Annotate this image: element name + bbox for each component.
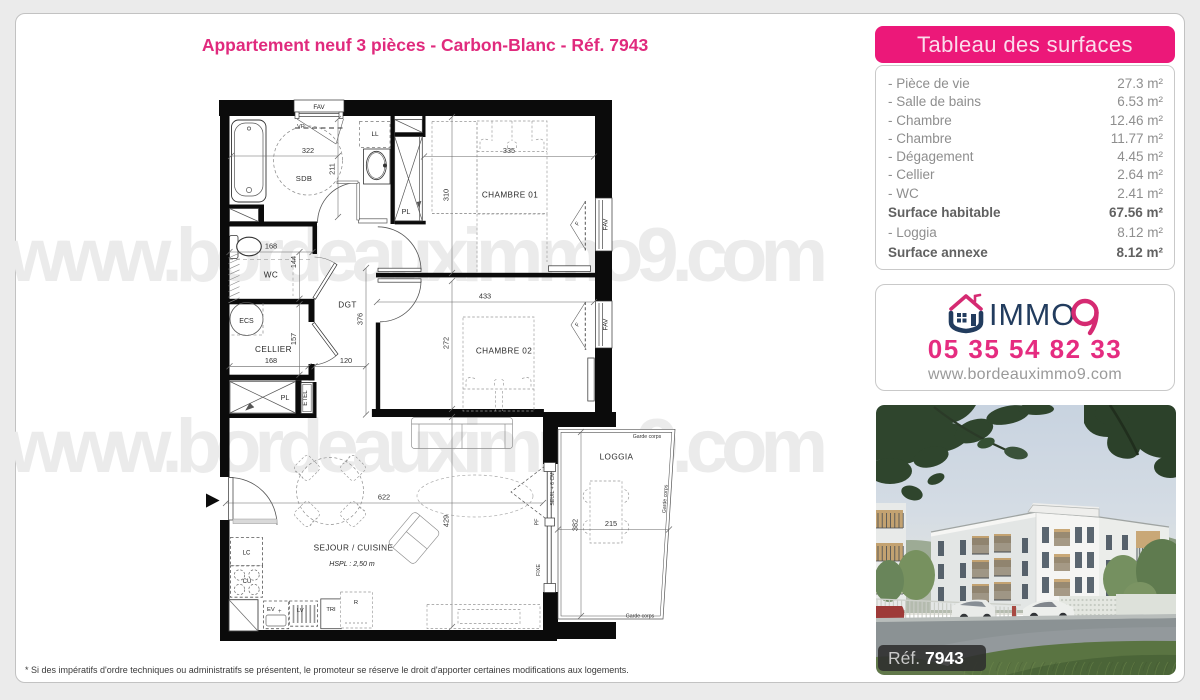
svg-text:FAV: FAV (603, 218, 610, 230)
svg-text:SDB: SDB (296, 174, 313, 183)
svg-text:IMMO: IMMO (989, 298, 1076, 332)
svg-text:168: 168 (265, 356, 277, 365)
svg-text:F: F (575, 322, 582, 328)
svg-text:622: 622 (378, 493, 390, 502)
svg-text:LL: LL (371, 131, 379, 138)
svg-text:SEJOUR / CUISINE: SEJOUR / CUISINE (314, 544, 394, 553)
svg-text:F: F (575, 221, 582, 227)
svg-text:310: 310 (442, 189, 451, 201)
svg-text:VR: VR (297, 124, 305, 130)
svg-text:DGT: DGT (338, 301, 356, 310)
svg-text:272: 272 (442, 337, 451, 349)
svg-text:HSPL : 2,50 m: HSPL : 2,50 m (329, 561, 375, 568)
svg-text:LV: LV (297, 608, 304, 614)
svg-text:LC: LC (243, 551, 251, 557)
svg-text:Réf. 7943: Réf. 7943 (888, 648, 964, 668)
svg-text:144: 144 (289, 256, 298, 268)
svg-text:FIXE: FIXE (536, 564, 542, 576)
svg-text:120: 120 (340, 356, 352, 365)
svg-text:PL: PL (281, 393, 290, 402)
svg-text:168: 168 (265, 242, 277, 251)
svg-text:382: 382 (571, 519, 580, 531)
svg-text:FAV: FAV (313, 104, 325, 111)
svg-text:ETEL: ETEL (302, 390, 309, 406)
svg-text:376: 376 (356, 313, 365, 325)
svg-text:433: 433 (479, 292, 491, 301)
svg-text:335: 335 (503, 146, 515, 155)
svg-text:TRI: TRI (326, 607, 336, 613)
svg-text:FAV: FAV (603, 318, 610, 330)
svg-text:429: 429 (442, 515, 451, 527)
svg-text:CELLIER: CELLIER (255, 345, 292, 354)
svg-text:CHAMBRE 02: CHAMBRE 02 (476, 347, 532, 356)
svg-text:Garde corps: Garde corps (626, 614, 655, 620)
svg-text:CHAMBRE 01: CHAMBRE 01 (482, 191, 538, 200)
svg-text:WC: WC (264, 271, 278, 280)
svg-text:R: R (354, 600, 358, 606)
svg-text:CU: CU (243, 579, 252, 585)
svg-text:EV: EV (267, 607, 275, 613)
svg-text:215: 215 (605, 519, 617, 528)
svg-text:SEUIL + 6 CM: SEUIL + 6 CM (550, 472, 556, 505)
svg-text:LOGGIA: LOGGIA (600, 453, 634, 462)
svg-text:Garde corps: Garde corps (633, 434, 662, 440)
svg-text:322: 322 (302, 146, 314, 155)
svg-text:157: 157 (289, 333, 298, 345)
svg-text:211: 211 (328, 163, 337, 175)
svg-text:+: + (278, 609, 282, 615)
svg-text:PF: PF (535, 518, 541, 526)
svg-text:ECS: ECS (239, 318, 254, 325)
svg-text:PL: PL (402, 207, 411, 216)
